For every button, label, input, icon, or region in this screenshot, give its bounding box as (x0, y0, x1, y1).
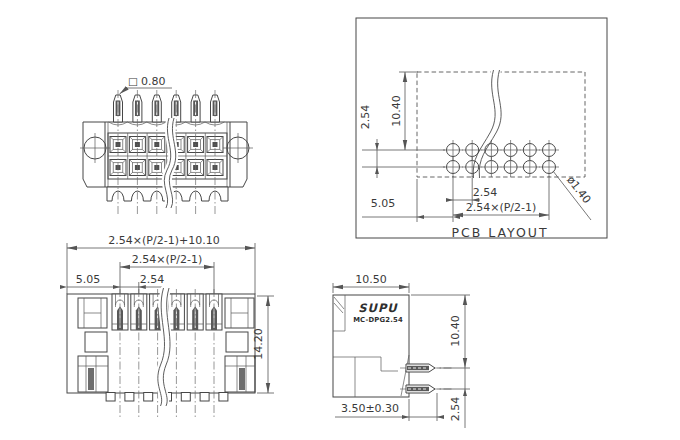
front-view: □ 0.80 (80, 75, 253, 216)
break-mask (476, 70, 498, 178)
foot (144, 393, 153, 402)
rear-view: 2.54×(P/2-1)+10.10 2.54×(P/2-1) 5.05 2.5… (60, 234, 274, 418)
arrow (375, 167, 379, 174)
arrow (417, 215, 424, 219)
foot (181, 393, 190, 402)
col-pitch-dim: 2.54 (140, 273, 165, 286)
foot (106, 393, 115, 402)
arrow (113, 285, 120, 289)
pin (406, 385, 435, 393)
brand-logo: SUPU (358, 301, 398, 315)
col-span-dim: 2.54×(P/2-1) (466, 201, 537, 214)
arrow (453, 215, 460, 219)
pcb-hole (501, 157, 521, 177)
body-height-dim: 10.40 (449, 315, 462, 347)
width-dim: 10.50 (355, 273, 387, 286)
leader-arrow (120, 88, 128, 94)
row-pitch-dim: 2.54 (359, 105, 372, 130)
col-pitch-dim: 2.54 (473, 186, 498, 199)
pin (406, 364, 435, 372)
height-dim: 14.20 (252, 328, 265, 360)
pcb-layout-view: 10.40 2.54 5.05 2.54 2.54×(P/2-1) ø1.40 … (356, 18, 607, 240)
pin-size-dim: 0.80 (141, 75, 166, 88)
row-offset-dim: 10.40 (390, 95, 403, 127)
technical-drawing-page: □ 0.80 (0, 0, 680, 440)
total-width-dim: 2.54×(P/2-1)+10.10 (108, 234, 219, 247)
arrow (375, 143, 379, 150)
pcb-layout-title: PCB LAYOUT (451, 225, 548, 240)
arrow (437, 415, 444, 419)
connector-drawing: □ 0.80 (0, 0, 680, 440)
pcb-hole (520, 157, 540, 177)
pcb-hole (539, 157, 559, 177)
arrow (446, 198, 453, 202)
pin-pitch-dim: 2.54 (449, 397, 462, 422)
foot (219, 393, 228, 402)
edge-offset-dim: 5.05 (76, 273, 101, 286)
arrow (463, 389, 467, 396)
model-label: MC-DPG2.54 (353, 316, 403, 324)
foot (125, 393, 134, 402)
arrow (402, 415, 409, 419)
col-span-dim: 2.54×(P/2-1) (132, 253, 203, 266)
square-section-symbol: □ (128, 75, 138, 87)
edge-offset-dim: 5.05 (371, 197, 396, 210)
pin-length-dim: 3.50±0.30 (341, 402, 399, 415)
foot (200, 393, 209, 402)
pcb-hole (443, 157, 463, 177)
pcb-hole (481, 157, 501, 177)
side-view: 10.50 SUPU MC-DPG2.54 10.40 2.54 3. (333, 273, 470, 428)
arrow (60, 285, 67, 289)
hole-diameter-dim: ø1.40 (564, 174, 593, 207)
